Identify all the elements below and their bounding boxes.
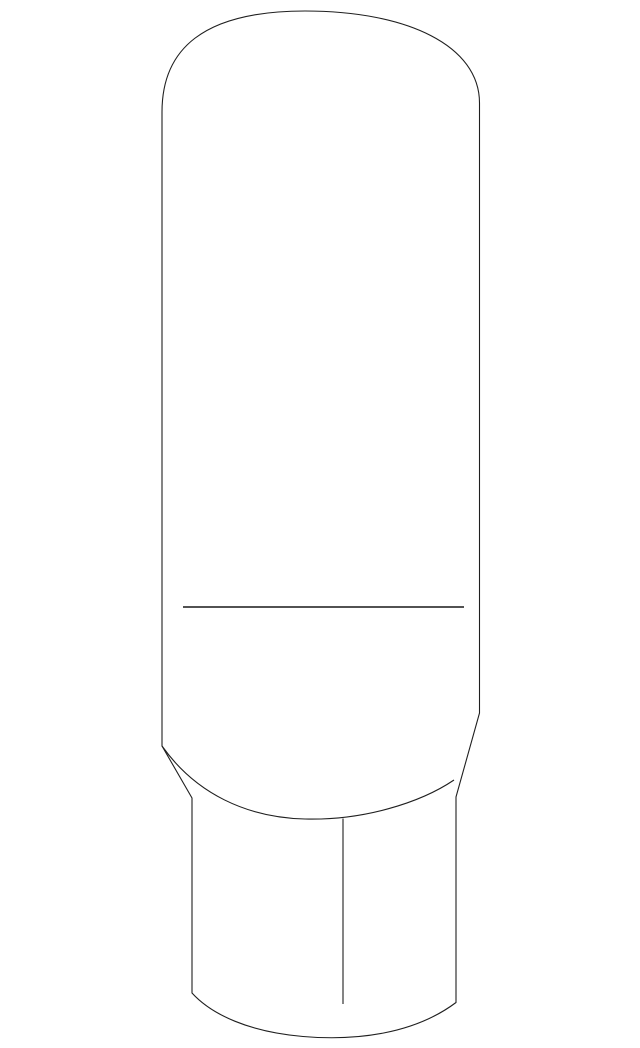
part-body-outline (162, 11, 480, 1038)
diagram-canvas (0, 0, 640, 1048)
part-diagram-svg (0, 0, 640, 1048)
